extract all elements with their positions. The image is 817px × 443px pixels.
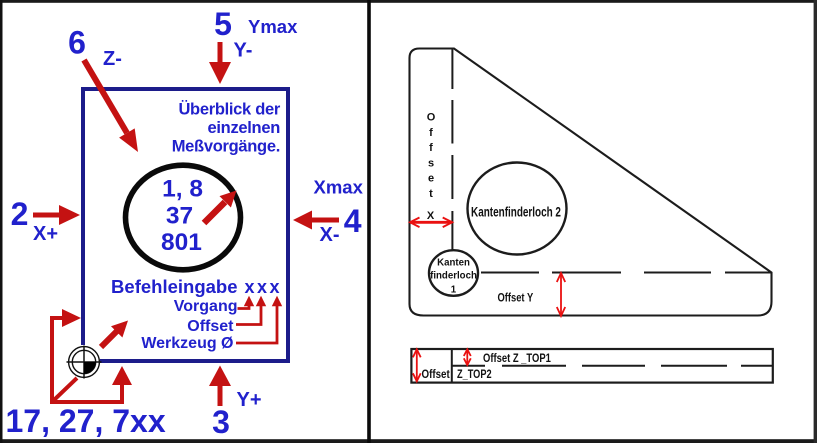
svg-text:Offset Z _TOP1: Offset Z _TOP1: [483, 352, 551, 365]
svg-text:f: f: [429, 142, 433, 154]
svg-text:5: 5: [214, 6, 232, 42]
svg-text:einzelnen: einzelnen: [208, 119, 281, 137]
svg-text:Kantenfinderloch 2: Kantenfinderloch 2: [471, 204, 561, 220]
svg-text:Vorgang: Vorgang: [174, 298, 238, 315]
svg-text:Z_TOP2: Z_TOP2: [457, 369, 492, 381]
svg-text:x: x: [257, 277, 267, 297]
svg-text:Meßvorgänge.: Meßvorgänge.: [172, 138, 280, 156]
svg-text:Werkzeug Ø: Werkzeug Ø: [141, 335, 233, 352]
svg-text:Überblick der: Überblick der: [178, 100, 280, 119]
svg-text:801: 801: [161, 229, 202, 256]
svg-text:Z-: Z-: [103, 48, 122, 70]
svg-text:1: 1: [451, 284, 457, 295]
svg-text:2: 2: [11, 196, 29, 232]
svg-text:X+: X+: [33, 223, 58, 245]
svg-text:X: X: [427, 210, 435, 222]
svg-text:3: 3: [212, 404, 230, 440]
svg-text:s: s: [428, 157, 434, 169]
svg-text:4: 4: [344, 203, 362, 239]
svg-text:Y+: Y+: [237, 389, 262, 411]
svg-text:Offset: Offset: [187, 318, 234, 335]
svg-text:Xmax: Xmax: [314, 177, 364, 198]
svg-text:e: e: [428, 173, 434, 185]
svg-text:t: t: [429, 188, 433, 200]
svg-text:Offset: Offset: [422, 368, 451, 381]
svg-text:37: 37: [166, 203, 193, 230]
svg-text:1, 8: 1, 8: [162, 176, 203, 203]
svg-text:O: O: [427, 112, 436, 124]
svg-text:finderloch: finderloch: [430, 270, 477, 281]
svg-text:Ymax: Ymax: [248, 16, 298, 37]
svg-text:Y-: Y-: [234, 40, 253, 62]
svg-text:f: f: [429, 127, 433, 139]
svg-text:x: x: [244, 277, 254, 297]
svg-text:Offset Y: Offset Y: [498, 291, 534, 304]
svg-text:Befehleingabe: Befehleingabe: [111, 276, 237, 297]
svg-text:X-: X-: [320, 224, 340, 246]
svg-text:Kanten: Kanten: [437, 257, 470, 268]
svg-text:6: 6: [68, 25, 86, 61]
svg-text:x: x: [269, 277, 279, 297]
svg-text:17, 27, 7xx: 17, 27, 7xx: [6, 403, 166, 439]
